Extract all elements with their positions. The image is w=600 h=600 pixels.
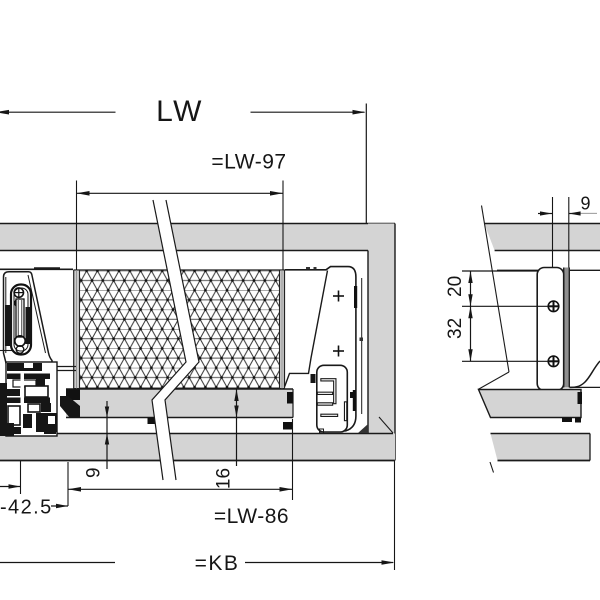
svg-text:=LW-86: =LW-86 xyxy=(214,505,289,528)
svg-text:32: 32 xyxy=(445,318,466,339)
svg-text:20: 20 xyxy=(445,276,466,297)
svg-text:9: 9 xyxy=(580,194,590,214)
svg-text:16: 16 xyxy=(214,468,235,489)
svg-text:=KB: =KB xyxy=(195,552,240,575)
svg-text:=LW-97: =LW-97 xyxy=(211,151,286,174)
svg-text:LW: LW xyxy=(156,95,204,128)
svg-text:-42.5: -42.5 xyxy=(0,497,53,519)
svg-text:9: 9 xyxy=(84,467,105,478)
